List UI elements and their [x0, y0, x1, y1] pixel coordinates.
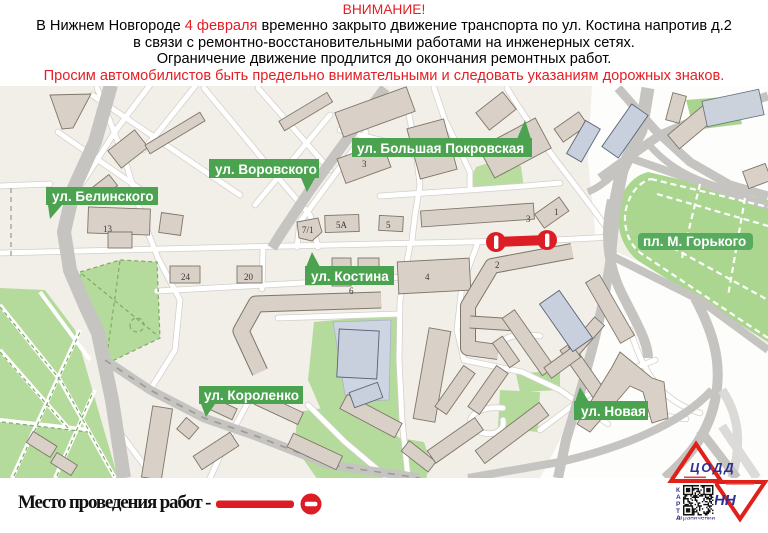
- svg-text:Р: Р: [676, 501, 681, 508]
- svg-text:пл. М. Горького: пл. М. Горького: [643, 234, 746, 249]
- svg-text:А: А: [676, 494, 681, 501]
- svg-text:ул. Костина: ул. Костина: [311, 269, 389, 284]
- svg-text:7/1: 7/1: [302, 225, 314, 235]
- svg-text:20: 20: [244, 272, 254, 282]
- svg-text:ул. Белинского: ул. Белинского: [52, 189, 154, 204]
- svg-text:ул. Новая: ул. Новая: [581, 404, 646, 419]
- svg-text:К: К: [676, 487, 680, 494]
- svg-text:3: 3: [526, 214, 531, 224]
- svg-text:2: 2: [495, 260, 500, 270]
- svg-text:3: 3: [362, 159, 367, 169]
- svg-text:ЦОДД: ЦОДД: [690, 460, 735, 475]
- svg-text:6: 6: [349, 286, 354, 296]
- svg-text:5: 5: [386, 220, 391, 230]
- svg-text:ул. Воровского: ул. Воровского: [215, 162, 317, 177]
- svg-text:24: 24: [181, 272, 191, 282]
- svg-text:ул. Большая Покровская: ул. Большая Покровская: [357, 141, 524, 156]
- svg-text:13: 13: [103, 224, 113, 234]
- svg-text:5А: 5А: [336, 220, 348, 230]
- svg-text:НН: НН: [714, 492, 737, 509]
- svg-text:ул. Короленко: ул. Короленко: [204, 388, 299, 403]
- svg-text:1: 1: [554, 207, 559, 217]
- svg-text:4: 4: [425, 272, 430, 282]
